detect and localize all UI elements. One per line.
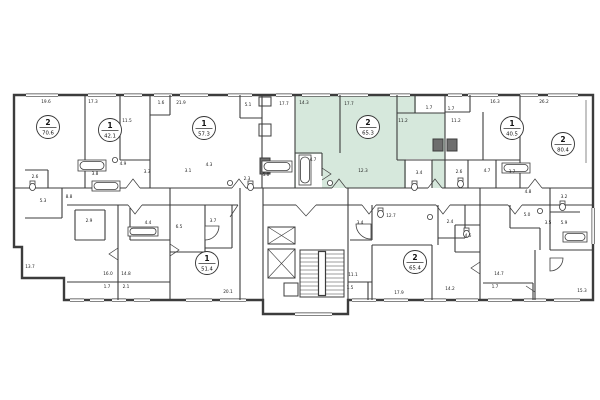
apartment-badge[interactable]: 270.6 xyxy=(37,116,60,139)
toilet-icon xyxy=(378,208,384,218)
sink-icon xyxy=(227,180,232,185)
bathtub-icon xyxy=(502,163,530,173)
room-area-label: 4.7 xyxy=(310,157,317,163)
toilet-icon xyxy=(458,178,464,188)
unit-area-value: 65.4 xyxy=(409,266,421,272)
shaft-box xyxy=(259,97,271,106)
room-area-label: 5.0 xyxy=(524,212,531,218)
apartment-badge[interactable]: 142.1 xyxy=(99,119,122,142)
room-area-label: 2.4 xyxy=(447,219,454,225)
room-area-label: 1.7 xyxy=(448,106,455,112)
room-area-label: 12.7 xyxy=(386,213,396,219)
room-area-label: 12.3 xyxy=(358,168,368,174)
unit-rooms-count: 2 xyxy=(412,253,417,262)
room-area-label: 14.8 xyxy=(121,271,131,277)
apartment-badge[interactable]: 157.3 xyxy=(193,117,216,140)
sink-icon xyxy=(537,208,542,213)
room-area-label: 3.7 xyxy=(210,218,217,224)
apartment-badge[interactable]: 140.5 xyxy=(501,117,524,140)
toilet-icon xyxy=(248,181,254,191)
unit-area-value: 65.3 xyxy=(362,131,374,137)
room-area-label: 17.9 xyxy=(394,290,404,296)
room-area-label: 26.2 xyxy=(539,99,549,105)
room-area-label: 11.5 xyxy=(122,118,132,124)
toilet-icon xyxy=(560,201,566,211)
room-area-label: 4.9 xyxy=(120,161,127,167)
bathtub-icon xyxy=(128,227,158,236)
room-area-label: 1.5 xyxy=(347,285,354,291)
room-area-label: 3.8 xyxy=(92,171,99,177)
room-area-label: 2.1 xyxy=(123,284,130,290)
stairs-icon xyxy=(300,250,344,297)
shower-icon xyxy=(356,224,371,239)
room-area-label: 4.3 xyxy=(206,162,213,168)
room-area-label: 19.6 xyxy=(41,99,51,105)
room-area-label: 6.5 xyxy=(176,224,183,230)
room-area-label: 1.6 xyxy=(158,100,165,106)
room-area-label: 16.3 xyxy=(490,99,500,105)
bathtub-icon xyxy=(92,181,120,191)
bathtub-icon xyxy=(262,161,292,172)
room-area-label: 3.5 xyxy=(545,220,552,226)
unit-rooms-count: 1 xyxy=(201,119,206,128)
room-area-label: 1.7 xyxy=(492,284,499,290)
floor-plan: 19.617.311.51.621.95.117.714.317.711.21.… xyxy=(0,0,600,400)
room-area-label: 4.7 xyxy=(484,168,491,174)
room-area-label: 4.8 xyxy=(525,189,532,195)
sink-icon xyxy=(327,180,332,185)
room-area-label: 14.7 xyxy=(494,271,504,277)
fixtures xyxy=(30,155,588,271)
unit-area-value: 57.3 xyxy=(198,132,210,138)
room-area-label: 3.4 xyxy=(357,220,364,226)
room-area-label: 1.7 xyxy=(426,105,433,111)
unit-area-value: 40.5 xyxy=(506,132,518,138)
unit-area-value: 42.1 xyxy=(104,134,116,140)
room-area-label: 16.0 xyxy=(103,271,113,277)
toilet-icon xyxy=(412,181,418,191)
room-area-label: 17.7 xyxy=(344,101,354,107)
room-area-label: 14.2 xyxy=(445,286,455,292)
unit-rooms-count: 2 xyxy=(45,118,50,127)
unit-area-value: 51.4 xyxy=(201,267,213,273)
shaft-box xyxy=(447,139,457,151)
room-area-label: 2.6 xyxy=(32,174,39,180)
unit-area-value: 70.6 xyxy=(42,131,54,137)
room-area-label: 4.4 xyxy=(145,220,152,226)
room-area-label: 14.3 xyxy=(299,100,309,106)
apartment-badge-selected[interactable]: 265.3 xyxy=(357,116,380,139)
room-area-label: 3.3 xyxy=(144,169,151,175)
room-area-label: 11.2 xyxy=(451,118,461,124)
room-area-label: 5.1 xyxy=(245,102,252,108)
room-area-label: 13.7 xyxy=(25,264,35,270)
room-area-label: 3.4 xyxy=(416,170,423,176)
room-area-label: 17.7 xyxy=(279,101,289,107)
unit-area-value: 80.4 xyxy=(557,148,569,154)
apartment-badge[interactable]: 265.4 xyxy=(404,251,427,274)
sink-icon xyxy=(112,157,117,162)
unit-rooms-count: 1 xyxy=(107,121,112,130)
shaft-box xyxy=(433,139,443,151)
unit-rooms-count: 2 xyxy=(365,118,370,127)
elevator-icon xyxy=(268,227,295,278)
room-area-label: 21.9 xyxy=(176,100,186,106)
room-area-label: 5.3 xyxy=(40,198,47,204)
room-area-label: 1.7 xyxy=(104,284,111,290)
apartment-badge[interactable]: 151.4 xyxy=(196,252,219,275)
room-area-label: 3.2 xyxy=(561,194,568,200)
sink-icon xyxy=(427,214,432,219)
room-area-label: 5.9 xyxy=(561,220,568,226)
room-area-label: 11.1 xyxy=(348,272,358,278)
room-area-label: 3.1 xyxy=(185,168,192,174)
unit-rooms-count: 1 xyxy=(204,254,209,263)
toilet-icon xyxy=(30,181,36,191)
room-area-label: 8.8 xyxy=(66,194,73,200)
duct-box xyxy=(284,283,298,296)
selected-apartment-region[interactable] xyxy=(295,96,445,188)
room-area-label: 2.9 xyxy=(86,218,93,224)
unit-rooms-count: 2 xyxy=(560,135,565,144)
room-area-label: 15.3 xyxy=(577,288,587,294)
bathtub-icon xyxy=(78,160,106,171)
room-area-label: 4.6 xyxy=(465,233,472,239)
shower-icon xyxy=(550,258,563,271)
apartment-badge[interactable]: 280.4 xyxy=(552,133,575,156)
room-area-label: 17.3 xyxy=(88,99,98,105)
room-area-label: 2.6 xyxy=(456,169,463,175)
room-area-label: 2.3 xyxy=(244,176,251,182)
shower-icon xyxy=(205,226,219,240)
room-area-label: 3.7 xyxy=(509,169,516,175)
bathtub-icon xyxy=(563,232,587,242)
room-area-label: 11.2 xyxy=(398,118,408,124)
floor-plan-page: 19.617.311.51.621.95.117.714.317.711.21.… xyxy=(0,0,600,400)
room-area-label: 20.1 xyxy=(223,289,233,295)
unit-rooms-count: 1 xyxy=(509,119,514,128)
shaft-box xyxy=(259,124,271,136)
room-area-label: 5.0 xyxy=(263,172,270,178)
